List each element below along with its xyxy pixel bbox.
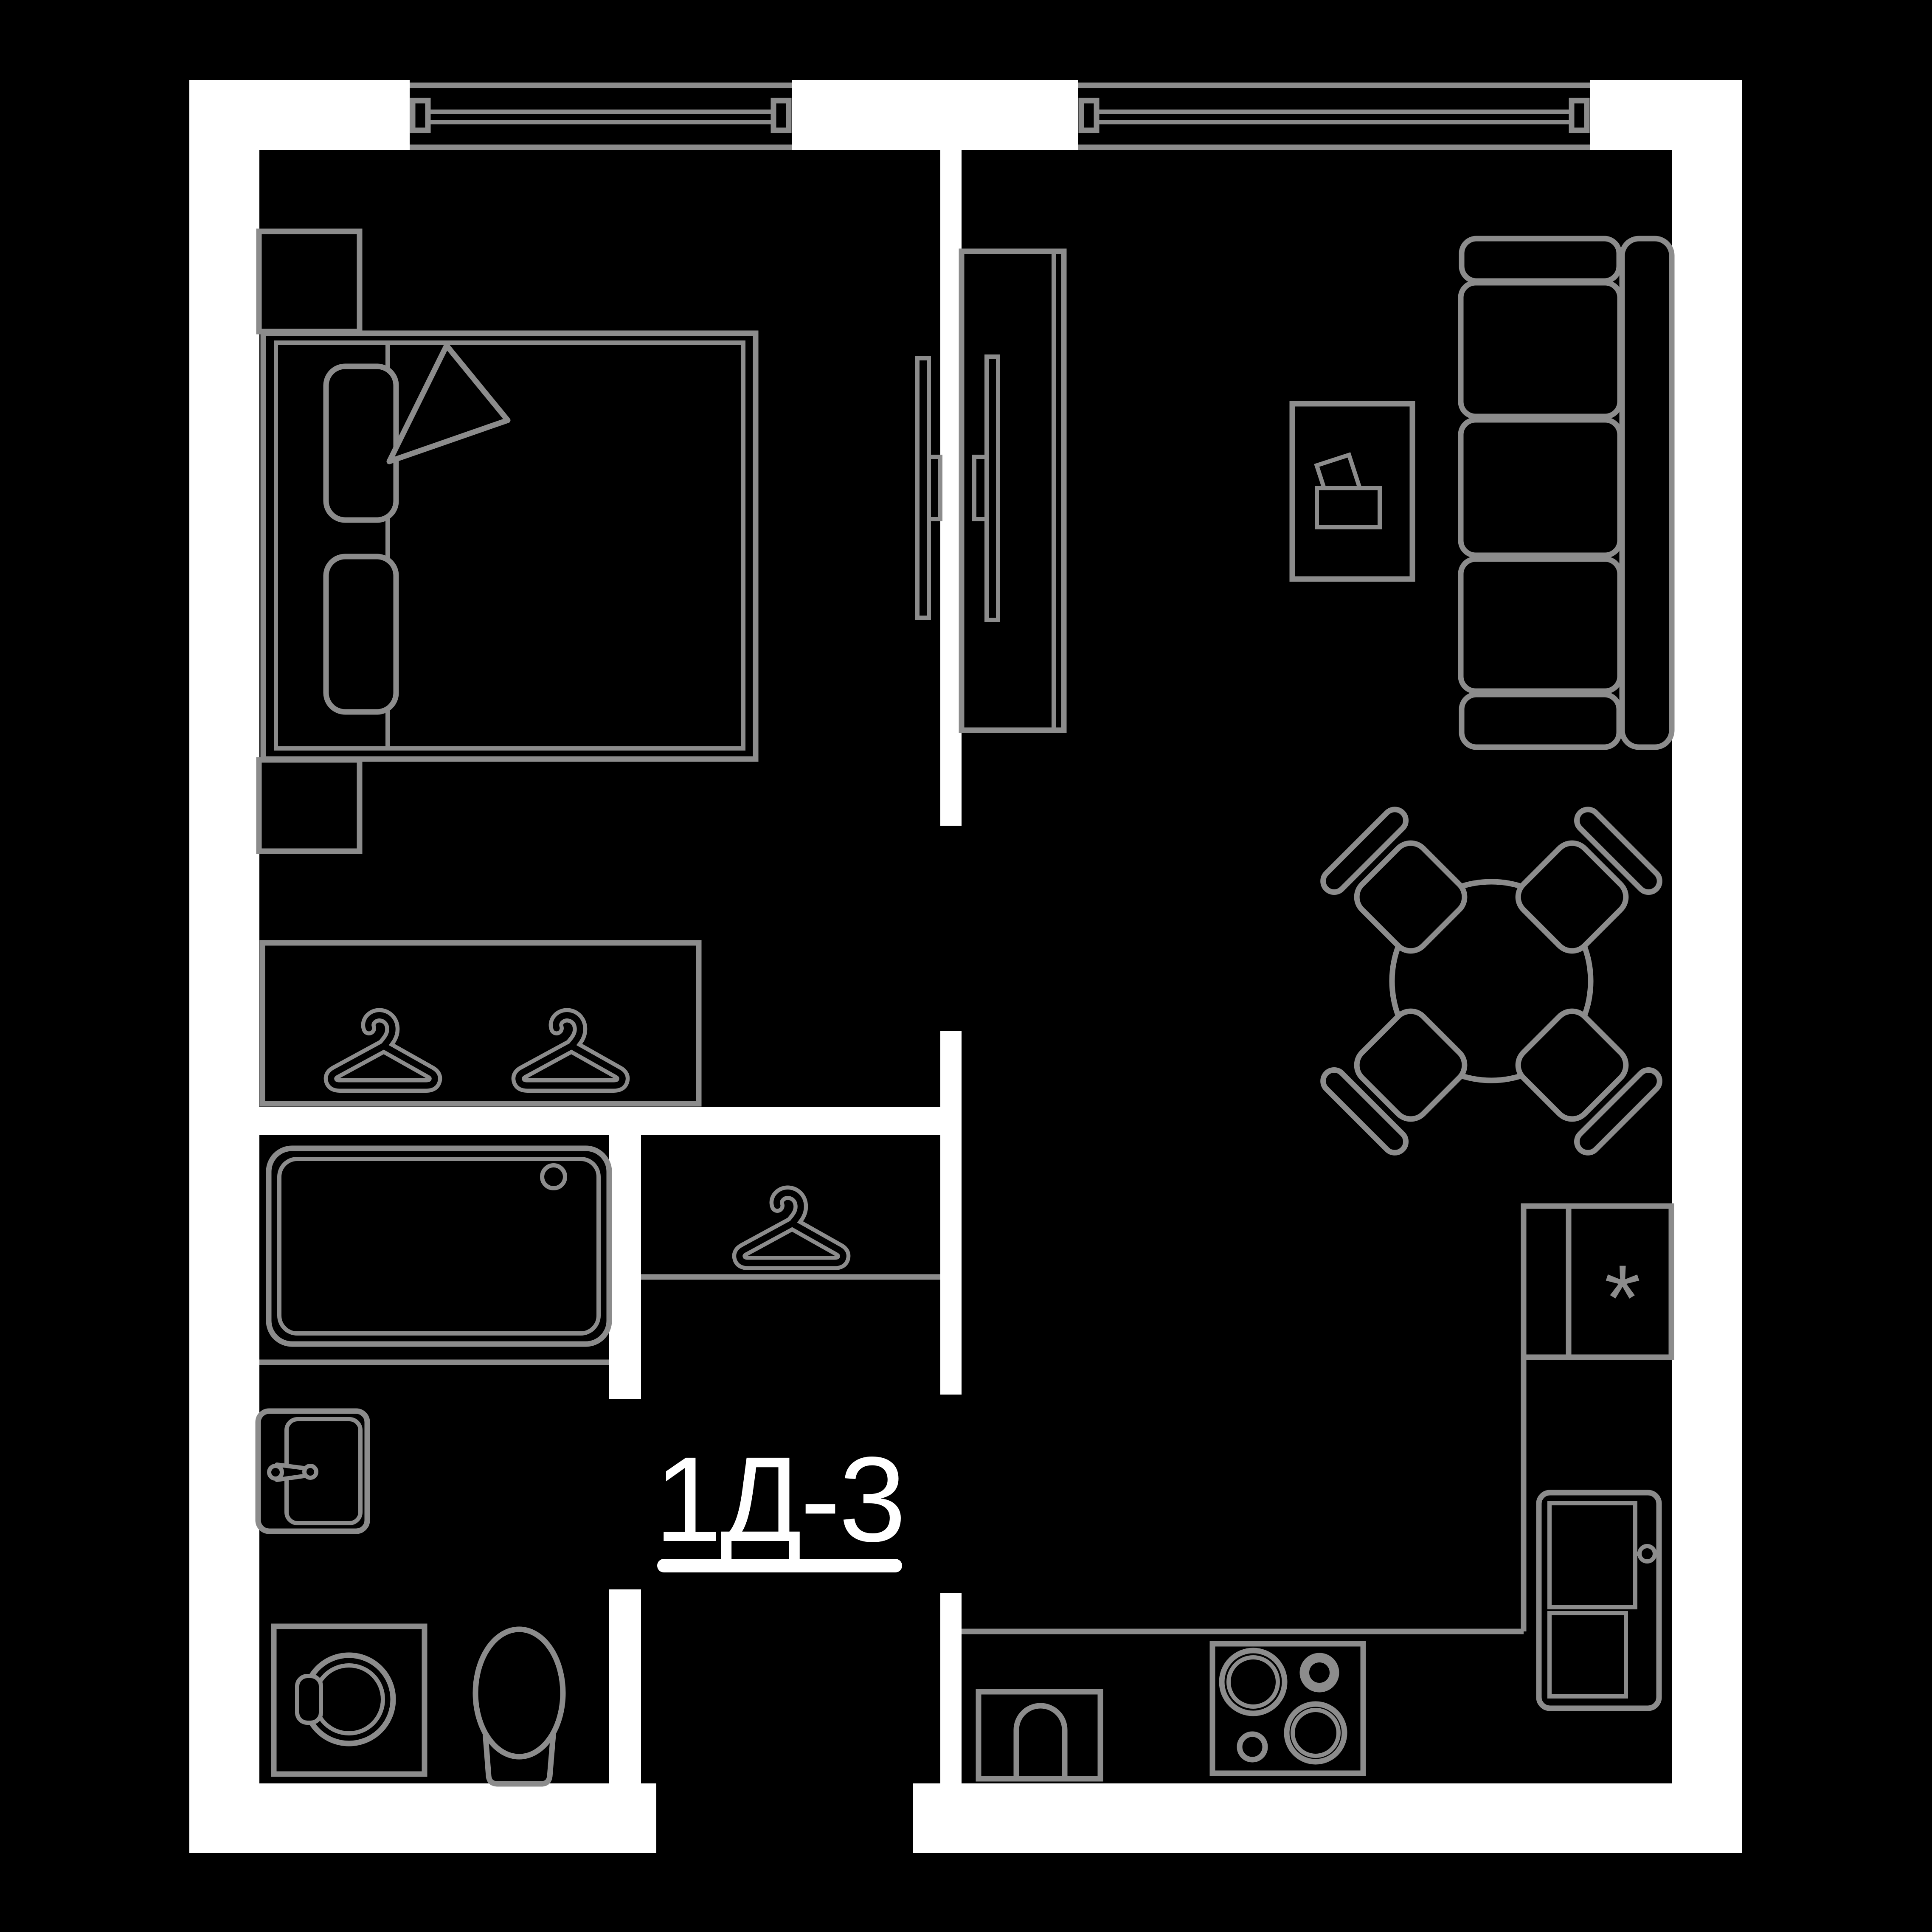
living-room-tv-mount [974, 457, 987, 519]
refrigerator-handle [1640, 1546, 1655, 1561]
nightstand-bottom [259, 760, 360, 851]
coffee-table [1292, 404, 1412, 579]
burner-small-inner [1307, 1660, 1332, 1685]
floor-plan-canvas: * [0, 0, 1932, 1932]
burner-small [1240, 1734, 1265, 1760]
cooktop [1212, 1644, 1363, 1773]
sofa-cushion [1461, 559, 1620, 691]
toilet-seat [475, 1629, 563, 1757]
coat-closet [641, 1193, 940, 1277]
burner-large [1287, 1704, 1344, 1762]
sofa-armrest-top [1462, 239, 1619, 281]
clothes-hanger-icon [740, 1193, 844, 1263]
wall-left [189, 80, 259, 1853]
plan-label-group: 1Д-3 [655, 1432, 905, 1572]
living-room [962, 239, 1672, 1157]
coffee-table-decor-tray [1317, 488, 1380, 527]
faucet-base [269, 1466, 282, 1479]
burner-large-inner [1229, 1657, 1278, 1707]
dining-chair [1319, 805, 1479, 966]
refrigerator-asterisk-icon: * [1604, 1246, 1641, 1350]
wardrobe-niche [262, 943, 699, 1104]
refrigerator [1539, 1493, 1659, 1708]
wall-partition-bottom [940, 1593, 962, 1783]
bathtub-outer [269, 1148, 609, 1344]
dining-chair [1503, 805, 1664, 966]
window-bedroom [410, 85, 792, 147]
wall-bathroom-right-upper [609, 1135, 641, 1399]
wall-bathroom-right-lower [609, 1589, 641, 1783]
dining-chair [1503, 996, 1664, 1157]
sofa-armrest-bottom [1462, 695, 1619, 747]
plan-label-underline [657, 1559, 902, 1572]
nightstand-top [259, 231, 360, 332]
pillow [326, 557, 396, 712]
bathroom [258, 1148, 609, 1784]
sofa-backrest [1622, 239, 1672, 747]
window-living-room [1078, 85, 1590, 147]
wall-hall-top [259, 1107, 940, 1135]
washing-machine-door-hinge [297, 1676, 321, 1723]
bathtub-drain-icon [542, 1165, 565, 1188]
bedroom [259, 231, 940, 851]
kitchen: * [962, 1206, 1671, 1779]
refrigerator-lower-door [1550, 1613, 1626, 1696]
burner-large [1222, 1651, 1285, 1713]
sofa-cushion [1461, 283, 1620, 416]
window-end-cap [773, 101, 789, 130]
pillow [326, 366, 396, 520]
toilet [475, 1629, 563, 1784]
dining-set [1319, 805, 1664, 1157]
bedroom-tv-mount [929, 457, 940, 519]
wall-bottom-left [189, 1783, 656, 1853]
plan-label: 1Д-3 [655, 1432, 905, 1567]
clothes-hanger-icon [331, 1015, 435, 1086]
washing-machine [274, 1626, 425, 1774]
kitchen-sink [979, 1692, 1100, 1779]
refrigerator-upper-door [1550, 1503, 1635, 1607]
window-end-cap [1081, 101, 1097, 130]
double-bed [263, 333, 756, 759]
refrigerator-box-outline [1524, 1206, 1671, 1357]
wall-right [1672, 80, 1742, 1853]
clothes-hanger-icon [519, 1015, 623, 1086]
bathtub [269, 1148, 609, 1344]
wall-partition-top [940, 150, 962, 826]
refrigerator-box: * [1524, 1206, 1671, 1357]
dining-chair [1319, 996, 1479, 1157]
floor-plan-page: { "colors": { "bg": "#000000", "wall": "… [0, 0, 1932, 1932]
faucet-knob [304, 1466, 316, 1478]
sofa-cushion [1461, 420, 1620, 555]
bathtub-inner [279, 1159, 599, 1333]
window-end-cap [1572, 101, 1587, 130]
refrigerator-body [1539, 1493, 1659, 1708]
wall-top-middle [792, 80, 1078, 150]
burner-large-inner [1293, 1710, 1339, 1756]
wall-bottom-right [913, 1783, 1742, 1853]
window-end-cap [413, 101, 428, 130]
kitchen-sink-basin [1016, 1706, 1065, 1778]
wall-partition-middle [940, 1031, 962, 1395]
media-stand [962, 251, 1064, 730]
washbasin [258, 1411, 367, 1531]
sofa [1461, 239, 1672, 747]
